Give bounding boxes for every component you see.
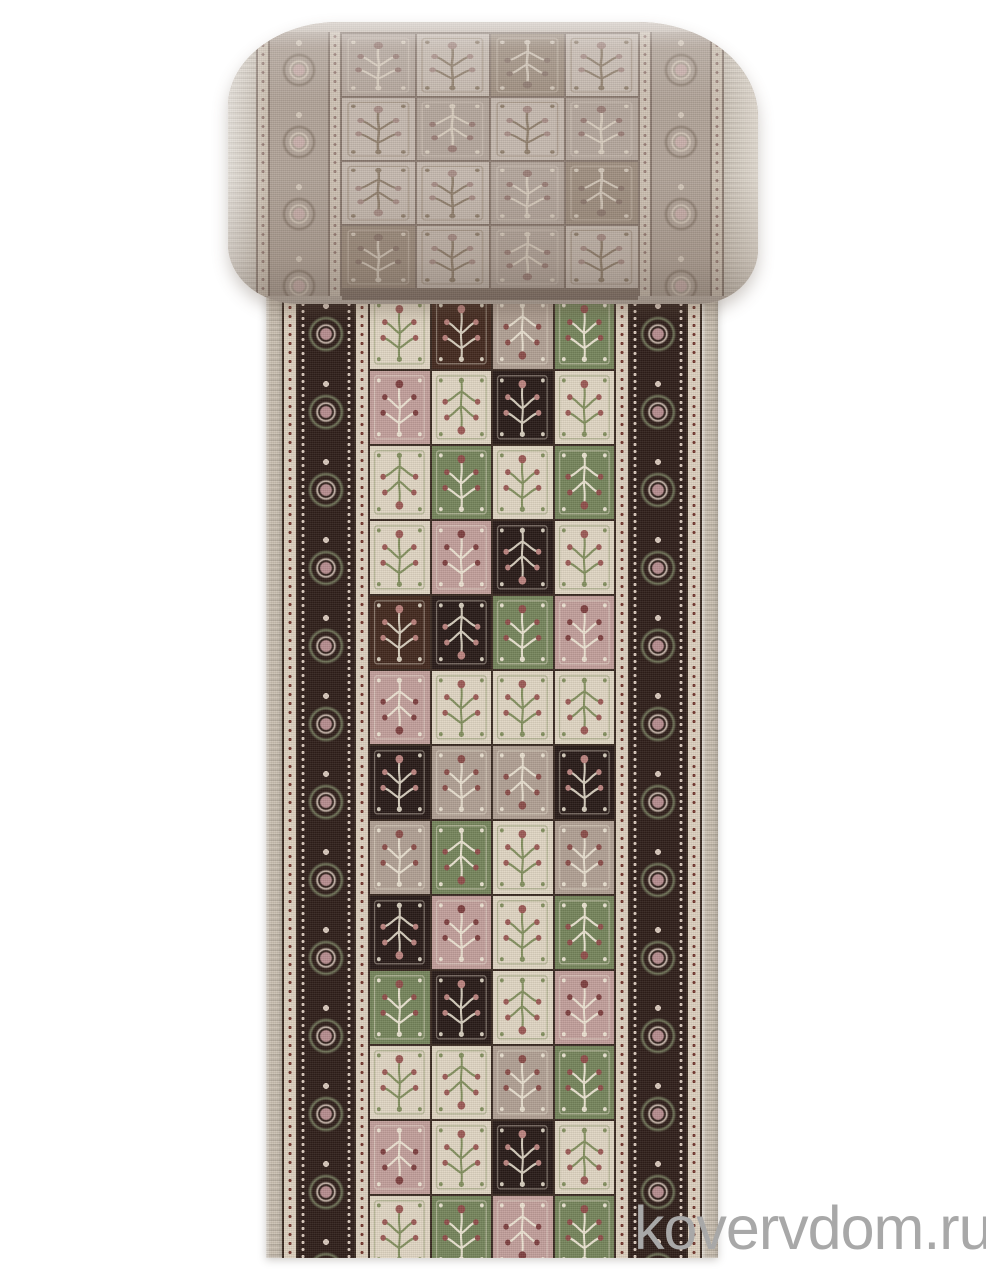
product-photo: kovervdom.ru: [0, 0, 986, 1280]
field-tile: [370, 1196, 430, 1258]
field-tile: [370, 296, 430, 369]
floral-motif-icon: [557, 298, 612, 367]
field-tile: [493, 446, 553, 519]
floral-motif-icon: [434, 298, 489, 367]
field-tile: [432, 446, 492, 519]
field-tile: [555, 1046, 615, 1119]
floral-motif-icon: [557, 823, 612, 892]
roll-guard-inner-right: [640, 32, 650, 296]
field-tile: [432, 971, 492, 1044]
field-tile: [555, 296, 615, 369]
field-tile: [493, 671, 553, 744]
floral-motif-icon: [434, 898, 489, 967]
field-tile: [342, 226, 415, 288]
roll-guard-inner-left: [330, 32, 340, 296]
field-tile: [555, 596, 615, 669]
floral-motif-icon: [372, 1048, 427, 1117]
floral-motif-icon: [434, 1048, 489, 1117]
field-tile: [370, 446, 430, 519]
field-tile: [555, 446, 615, 519]
floral-motif-icon: [568, 36, 635, 94]
field-tile: [432, 896, 492, 969]
field-tile: [555, 521, 615, 594]
field-tile: [432, 671, 492, 744]
floral-motif-icon: [372, 598, 427, 667]
field-tile: [370, 371, 430, 444]
field-tile: [555, 1196, 615, 1258]
floral-motif-icon: [557, 898, 612, 967]
field-tile: [342, 162, 415, 224]
runner-guard-outer-right: [688, 294, 700, 1258]
field-tile: [566, 98, 639, 160]
floral-motif-icon: [557, 598, 612, 667]
field-tile: [370, 521, 430, 594]
field-tile: [493, 971, 553, 1044]
floral-motif-icon: [557, 1198, 612, 1258]
floral-motif-icon: [495, 598, 550, 667]
floral-motif-icon: [494, 228, 561, 286]
field-tile: [493, 521, 553, 594]
floral-motif-icon: [419, 100, 486, 158]
field-tile: [370, 671, 430, 744]
field-tile: [432, 296, 492, 369]
roll-field: [342, 32, 638, 300]
field-tile: [493, 596, 553, 669]
floral-motif-icon: [372, 973, 427, 1042]
field-tile: [370, 896, 430, 969]
field-tile: [342, 98, 415, 160]
field-tile: [493, 1121, 553, 1194]
floral-motif-icon: [495, 373, 550, 442]
floral-motif-icon: [495, 823, 550, 892]
field-tile: [370, 596, 430, 669]
floral-motif-icon: [495, 973, 550, 1042]
floral-motif-icon: [434, 523, 489, 592]
field-tile: [555, 821, 615, 894]
floral-motif-icon: [495, 1048, 550, 1117]
floral-motif-icon: [568, 164, 635, 222]
floral-motif-icon: [345, 100, 412, 158]
floral-motif-icon: [372, 1198, 427, 1258]
field-tile: [555, 971, 615, 1044]
floral-motif-icon: [372, 373, 427, 442]
floral-motif-icon: [495, 298, 550, 367]
field-tile: [493, 746, 553, 819]
field-tile: [370, 1121, 430, 1194]
field-tile: [493, 896, 553, 969]
roll-edge-right: [724, 32, 758, 296]
floral-motif-icon: [494, 164, 561, 222]
runner-selvage-right: [702, 294, 718, 1258]
runner-border-left: [298, 294, 354, 1258]
floral-motif-icon: [557, 373, 612, 442]
floral-motif-icon: [419, 164, 486, 222]
floral-motif-icon: [568, 228, 635, 286]
floral-motif-icon: [345, 36, 412, 94]
floral-motif-icon: [434, 448, 489, 517]
runner-field: [370, 294, 614, 1258]
field-tile: [417, 226, 490, 288]
field-tile: [555, 371, 615, 444]
floral-motif-icon: [372, 1123, 427, 1192]
field-tile: [493, 1196, 553, 1258]
floral-motif-icon: [495, 523, 550, 592]
floral-motif-icon: [557, 448, 612, 517]
roll-border-right: [652, 32, 710, 296]
field-tile: [432, 1046, 492, 1119]
floral-motif-icon: [345, 164, 412, 222]
runner-border-right: [630, 294, 686, 1258]
field-tile: [417, 34, 490, 96]
field-tile: [491, 98, 564, 160]
field-tile: [493, 821, 553, 894]
floral-motif-icon: [495, 1198, 550, 1258]
floral-motif-icon: [345, 228, 412, 286]
floral-motif-icon: [419, 36, 486, 94]
field-tile: [417, 98, 490, 160]
field-tile: [417, 162, 490, 224]
floral-motif-icon: [372, 523, 427, 592]
field-tile: [555, 671, 615, 744]
floral-motif-icon: [557, 1123, 612, 1192]
floral-motif-icon: [372, 823, 427, 892]
field-tile: [370, 1046, 430, 1119]
floral-motif-icon: [434, 673, 489, 742]
field-tile: [432, 1196, 492, 1258]
field-tile: [370, 821, 430, 894]
runner-guard-inner-right: [616, 294, 628, 1258]
runner-selvage-left: [266, 294, 282, 1258]
field-tile: [555, 896, 615, 969]
field-tile: [493, 1046, 553, 1119]
floral-motif-icon: [372, 298, 427, 367]
field-tile: [566, 162, 639, 224]
floral-motif-icon: [434, 973, 489, 1042]
floral-motif-icon: [495, 673, 550, 742]
floral-motif-icon: [434, 748, 489, 817]
field-tile: [432, 746, 492, 819]
field-tile: [432, 596, 492, 669]
floral-motif-icon: [557, 973, 612, 1042]
floral-motif-icon: [557, 1048, 612, 1117]
field-tile: [370, 746, 430, 819]
floral-motif-icon: [372, 898, 427, 967]
roll-guard-outer-left: [258, 32, 268, 296]
floral-motif-icon: [495, 1123, 550, 1192]
field-tile: [566, 34, 639, 96]
floral-motif-icon: [434, 1198, 489, 1258]
field-tile: [491, 226, 564, 288]
field-tile: [370, 971, 430, 1044]
floral-motif-icon: [372, 448, 427, 517]
floral-motif-icon: [494, 100, 561, 158]
floral-motif-icon: [372, 748, 427, 817]
floral-motif-icon: [557, 523, 612, 592]
field-tile: [555, 746, 615, 819]
field-tile: [432, 1121, 492, 1194]
field-tile: [566, 226, 639, 288]
runner-guard-outer-left: [284, 294, 296, 1258]
field-tile: [491, 34, 564, 96]
roll-edge-left: [228, 32, 256, 296]
floral-motif-icon: [419, 228, 486, 286]
floral-motif-icon: [434, 1123, 489, 1192]
floral-motif-icon: [434, 373, 489, 442]
floral-motif-icon: [434, 598, 489, 667]
field-tile: [493, 371, 553, 444]
field-tile: [432, 521, 492, 594]
floral-motif-icon: [495, 448, 550, 517]
floral-motif-icon: [568, 100, 635, 158]
floral-motif-icon: [557, 673, 612, 742]
roll-border-left: [270, 32, 328, 296]
floral-motif-icon: [495, 748, 550, 817]
floral-motif-icon: [372, 673, 427, 742]
field-tile: [555, 1121, 615, 1194]
floral-motif-icon: [557, 748, 612, 817]
runner-guard-inner-left: [356, 294, 368, 1258]
roll-guard-outer-right: [712, 32, 722, 296]
floral-motif-icon: [434, 823, 489, 892]
field-tile: [432, 371, 492, 444]
carpet-roll-face: [228, 32, 758, 296]
field-tile: [342, 34, 415, 96]
watermark: kovervdom.ru: [634, 1198, 986, 1259]
field-tile: [491, 162, 564, 224]
carpet-runner: [266, 294, 718, 1258]
floral-motif-icon: [495, 898, 550, 967]
field-tile: [432, 821, 492, 894]
carpet-roll: [228, 22, 758, 304]
floral-motif-icon: [494, 36, 561, 94]
field-tile: [493, 296, 553, 369]
